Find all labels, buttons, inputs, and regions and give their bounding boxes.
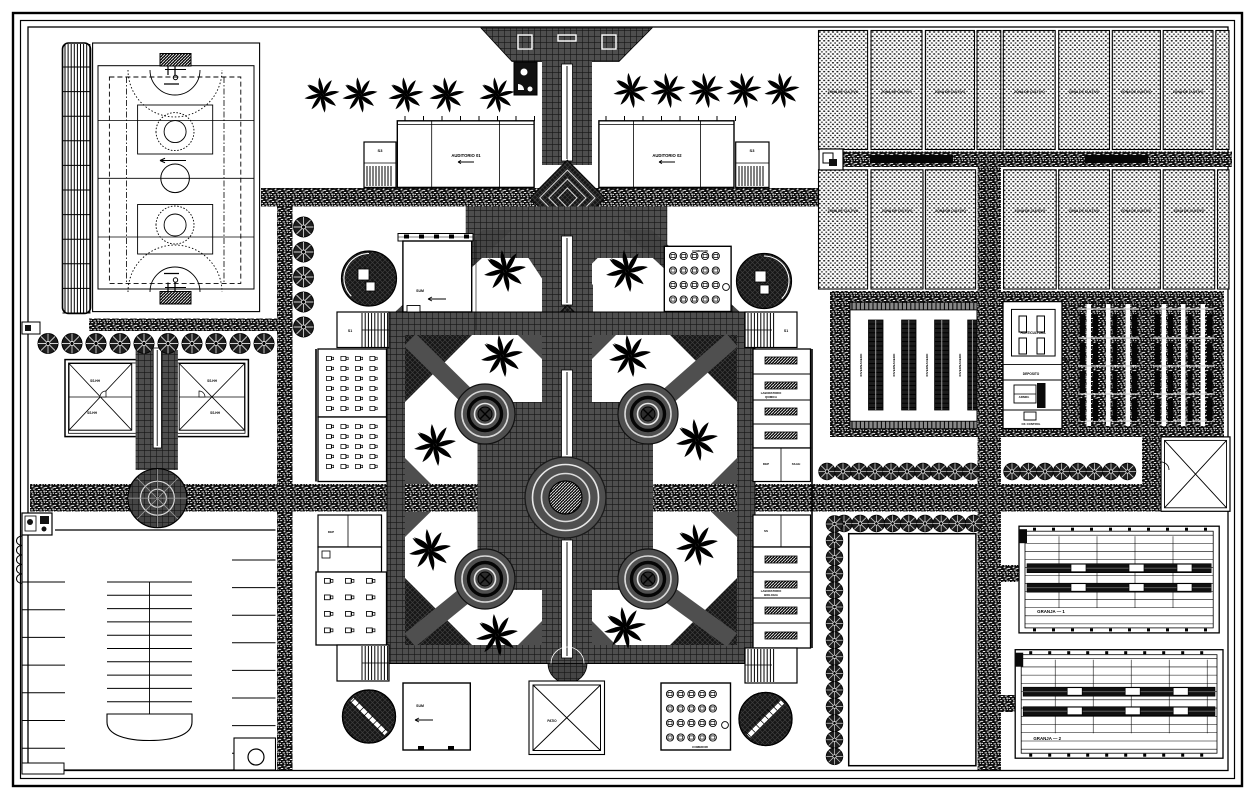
svg-text:SUM: SUM (416, 704, 424, 708)
svg-text:INVERNADERO: INVERNADERO (958, 353, 962, 376)
svg-text:ADMIN.: ADMIN. (1019, 395, 1030, 399)
svg-text:AUDITORIO 02: AUDITORIO 02 (652, 153, 682, 158)
svg-text:SS.HH: SS.HH (792, 462, 801, 466)
svg-text:ZONA DE CULTIVO: ZONA DE CULTIVO (881, 90, 912, 94)
svg-text:QUIMICA: QUIMICA (765, 395, 777, 399)
svg-text:S3: S3 (750, 148, 756, 153)
svg-text:S1: S1 (348, 329, 352, 333)
svg-text:DEPOSITO: DEPOSITO (1023, 372, 1040, 376)
svg-text:SS: SS (764, 529, 768, 533)
svg-text:ZONA DE CULTIVO: ZONA DE CULTIVO (1173, 90, 1204, 94)
svg-text:COMEDOR: COMEDOR (692, 745, 709, 749)
svg-text:SUM: SUM (416, 289, 424, 293)
svg-text:DEP: DEP (328, 530, 334, 534)
svg-text:DEP: DEP (763, 462, 769, 466)
svg-text:INVERNADERO: INVERNADERO (859, 353, 863, 376)
svg-text:S1: S1 (784, 329, 788, 333)
svg-text:ZONA DE CULTIVO: ZONA DE CULTIVO (1069, 90, 1100, 94)
svg-text:PATIO: PATIO (547, 719, 557, 723)
svg-text:ZONA DE CULTIVO: ZONA DE CULTIVO (828, 209, 859, 213)
svg-text:INVERNADERO: INVERNADERO (892, 353, 896, 376)
svg-text:ZONA DE CULTIVO: ZONA DE CULTIVO (935, 90, 966, 94)
svg-text:HORTICULTURA: HORTICULTURA (1020, 331, 1046, 335)
svg-text:ZONA DE CULTIVO: ZONA DE CULTIVO (1121, 90, 1152, 94)
svg-text:ZONA DE CULTIVO: ZONA DE CULTIVO (935, 209, 966, 213)
svg-text:GRANJA — 1: GRANJA — 1 (1037, 609, 1065, 614)
svg-text:ZONA DE CULTIVO: ZONA DE CULTIVO (882, 209, 913, 213)
svg-text:SS.HH: SS.HH (87, 411, 97, 415)
svg-text:ZONA DE CULTIVO: ZONA DE CULTIVO (1069, 209, 1100, 213)
svg-text:ZONA DE CULTIVO: ZONA DE CULTIVO (828, 90, 859, 94)
svg-text:ZONA DE CULTIVO: ZONA DE CULTIVO (1014, 90, 1045, 94)
svg-text:AUDITORIO 01: AUDITORIO 01 (451, 153, 481, 158)
svg-text:INVERNADERO: INVERNADERO (925, 353, 929, 376)
svg-text:GRANJA — 2: GRANJA — 2 (1033, 736, 1061, 741)
svg-text:BIOLOGIA: BIOLOGIA (764, 593, 778, 597)
svg-text:ZONA DE CULTIVO: ZONA DE CULTIVO (1015, 209, 1046, 213)
svg-text:ZONA DE CULTIVO: ZONA DE CULTIVO (1174, 209, 1205, 213)
svg-text:SS.HH: SS.HH (210, 411, 220, 415)
svg-text:ZONA DE CULTIVO: ZONA DE CULTIVO (1121, 209, 1152, 213)
svg-text:SS.HH: SS.HH (207, 379, 217, 383)
svg-text:OF. CONTROL: OF. CONTROL (1022, 422, 1041, 426)
svg-text:S3: S3 (378, 148, 384, 153)
svg-text:SS.HH: SS.HH (90, 379, 100, 383)
svg-text:COMEDOR: COMEDOR (692, 249, 709, 253)
